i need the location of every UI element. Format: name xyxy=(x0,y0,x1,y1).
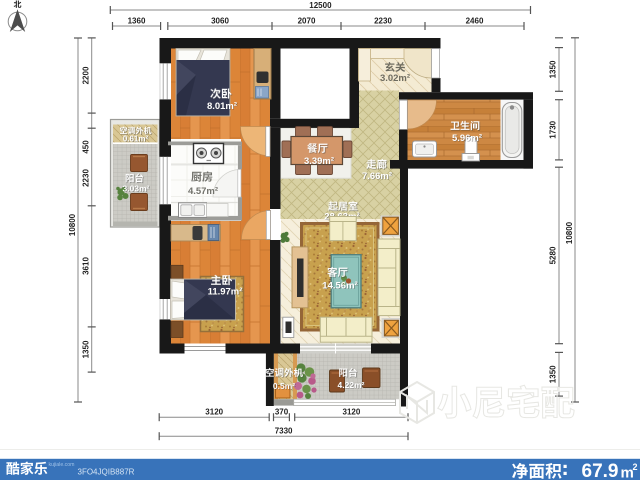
svg-text:67.9: 67.9 xyxy=(582,461,619,480)
svg-text:0.61m²: 0.61m² xyxy=(123,135,149,144)
svg-text:3FO4JQIB887R: 3FO4JQIB887R xyxy=(78,468,135,477)
svg-text:3.02m²: 3.02m² xyxy=(380,73,410,84)
svg-text:1350: 1350 xyxy=(549,60,558,78)
svg-text:3120: 3120 xyxy=(343,408,361,417)
svg-text:5280: 5280 xyxy=(549,246,558,264)
svg-text:2200: 2200 xyxy=(82,66,91,84)
svg-text:7330: 7330 xyxy=(275,427,293,436)
svg-text:10800: 10800 xyxy=(68,213,77,236)
svg-text:8.01m²: 8.01m² xyxy=(207,101,237,112)
svg-text:2230: 2230 xyxy=(82,169,91,187)
svg-text:11.97m²: 11.97m² xyxy=(208,287,243,298)
svg-text:2230: 2230 xyxy=(374,17,392,26)
svg-text:1350: 1350 xyxy=(549,365,558,383)
svg-text:10800: 10800 xyxy=(565,221,574,244)
svg-text:4.22m²: 4.22m² xyxy=(338,380,365,390)
svg-text:12500: 12500 xyxy=(309,1,332,10)
svg-text:3.03m²: 3.03m² xyxy=(123,184,150,194)
svg-text:2460: 2460 xyxy=(466,17,484,26)
svg-text:14.56m²: 14.56m² xyxy=(322,281,357,292)
svg-text:kujiale.com: kujiale.com xyxy=(49,462,75,468)
svg-text:1360: 1360 xyxy=(128,17,146,26)
svg-text:5.96m²: 5.96m² xyxy=(452,133,482,144)
svg-text:1730: 1730 xyxy=(549,120,558,138)
svg-text:3.39m²: 3.39m² xyxy=(304,156,334,167)
svg-text:3060: 3060 xyxy=(211,17,229,26)
svg-text:370: 370 xyxy=(275,408,289,417)
svg-text:4.57m²: 4.57m² xyxy=(188,186,218,197)
svg-text:2: 2 xyxy=(633,462,638,472)
svg-text:3120: 3120 xyxy=(205,408,223,417)
svg-text:2070: 2070 xyxy=(298,17,316,26)
svg-text:450: 450 xyxy=(82,140,91,154)
svg-text:3610: 3610 xyxy=(82,257,91,275)
svg-text:1350: 1350 xyxy=(82,340,91,358)
svg-text:0.5m²: 0.5m² xyxy=(273,381,295,391)
svg-text:7.66m²: 7.66m² xyxy=(362,171,392,182)
